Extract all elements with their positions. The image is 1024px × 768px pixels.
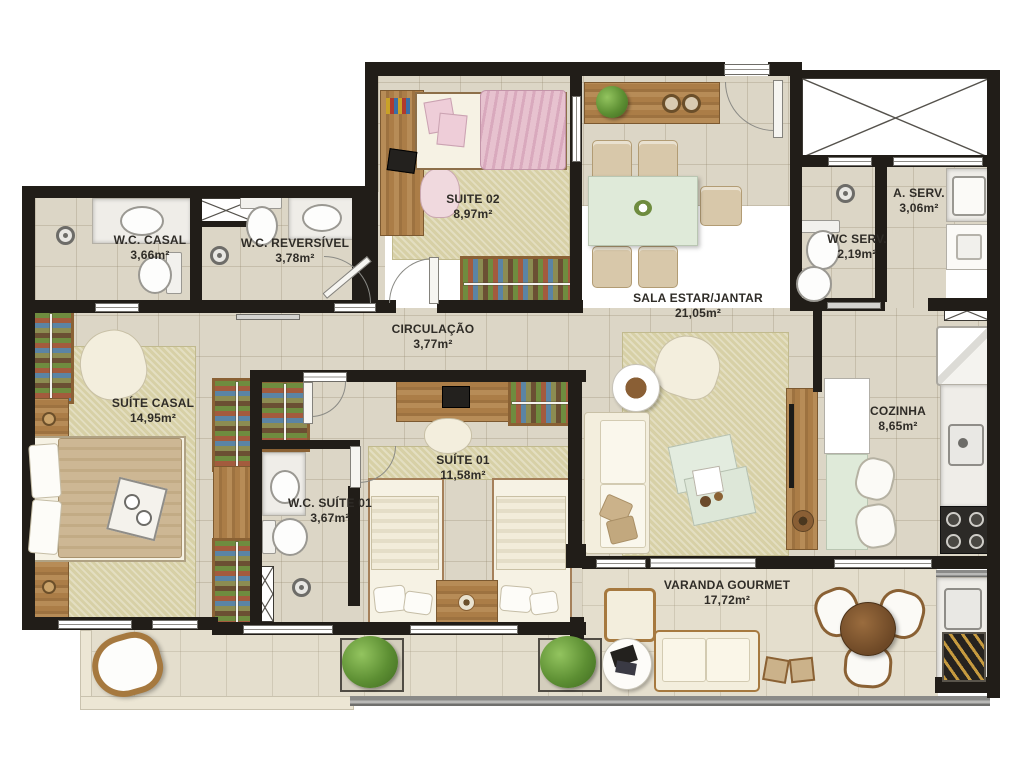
room-area: 2,19m² xyxy=(826,247,888,262)
churrasqueira-grill xyxy=(942,632,986,682)
door-opening-wc-casal xyxy=(95,303,139,312)
bowl-sideboard-b xyxy=(682,94,701,113)
room-name: W.C. SUÍTE 01 xyxy=(284,496,376,511)
room-label-sala: SALA ESTAR/JANTAR 21,05m² xyxy=(608,291,788,320)
window-suite-casal-a xyxy=(58,620,132,629)
wall-sala-cozinha-divider xyxy=(813,309,822,392)
hall-shaft xyxy=(802,78,989,158)
closet-casal-knob-a xyxy=(42,412,56,426)
door-opening-aserv-right xyxy=(893,157,983,166)
decor-ball-a xyxy=(700,496,711,507)
blanket-suite01-right xyxy=(496,496,566,570)
burner-2 xyxy=(969,512,984,527)
shower-head-wc-suite01 xyxy=(292,578,311,597)
decor-ball-b xyxy=(714,492,723,501)
sink-wc-casal xyxy=(120,206,164,236)
room-label-suite01: SUÍTE 01 11,58m² xyxy=(398,453,528,482)
varanda-round-table xyxy=(840,602,896,656)
wall-hall-top xyxy=(800,70,990,78)
dining-chair-5 xyxy=(638,246,678,288)
wall-suite02-bottom xyxy=(437,300,583,313)
side-table-sala xyxy=(612,364,660,412)
wall-circulacao-suite01 xyxy=(250,370,586,382)
room-area: 11,58m² xyxy=(398,468,528,483)
glass-door-cozinha xyxy=(834,559,932,568)
room-area: 17,72m² xyxy=(632,593,822,608)
room-name: COZINHA xyxy=(838,404,958,419)
varanda-stool-a xyxy=(762,656,790,684)
room-area: 3,77m² xyxy=(358,337,508,352)
room-label-wc-reversivel: W.C. REVERSÍVEL 3,78m² xyxy=(200,236,390,265)
room-name: SUÍTE 01 xyxy=(398,453,528,468)
speaker-panel xyxy=(792,510,814,532)
washing-machine-door xyxy=(956,234,982,260)
balcony-parapet-bottom xyxy=(80,696,354,710)
balcony-glass-railing xyxy=(350,696,990,706)
tv-screen xyxy=(789,404,794,488)
pillow-s1r-b xyxy=(529,590,560,616)
bowl-sideboard-a xyxy=(662,94,681,113)
varanda-sofa-cushion-b xyxy=(706,638,750,682)
sofa-sala-cushion-a xyxy=(600,420,646,484)
pillow-s1l-a xyxy=(373,584,408,613)
room-name: CIRCULAÇÃO xyxy=(358,322,508,337)
door-leaf-suite02 xyxy=(429,257,439,304)
glass-door-varanda-a xyxy=(596,559,646,568)
pillow-s1l-b xyxy=(403,590,434,616)
window-suite01-a xyxy=(243,625,333,634)
door-opening-suite01-hall xyxy=(303,372,347,382)
nightstand-knob xyxy=(458,594,475,611)
wall-wcserv-aserv-divider xyxy=(875,160,887,302)
entry-threshold xyxy=(724,64,770,75)
wall-suitecasal-suite01 xyxy=(250,372,262,624)
window-suite02-sala xyxy=(572,96,581,162)
room-label-cozinha: COZINHA 8,65m² xyxy=(838,404,958,433)
room-area: 3,06m² xyxy=(874,201,964,216)
sink-wc-serv xyxy=(796,266,832,302)
plant-b xyxy=(540,636,596,688)
apartment-floor-plan: W.C. CASAL 3,66m² W.C. REVERSÍVEL 3,78m²… xyxy=(0,0,1024,768)
sink-wc-rev xyxy=(302,204,342,232)
room-name: W.C. REVERSÍVEL xyxy=(200,236,390,251)
room-area: 8,97m² xyxy=(398,207,548,222)
laptop-suite01 xyxy=(442,386,470,408)
door-leaf-suite01-hall xyxy=(303,382,313,424)
tray-cup-b xyxy=(136,510,152,526)
room-label-wc-serv: WC SERV. 2,19m² xyxy=(826,232,888,261)
service-counter xyxy=(946,270,988,298)
laptop-suite02 xyxy=(387,148,418,174)
room-label-wc-suite01: W.C. SUÍTE 01 3,67m² xyxy=(284,496,376,525)
burner-4 xyxy=(969,534,984,549)
room-area: 8,65m² xyxy=(838,419,958,434)
room-area: 3,67m² xyxy=(284,511,376,526)
room-name: SUITE 02 xyxy=(398,192,548,207)
varanda-stool-b xyxy=(789,657,815,683)
room-name: A. SERV. xyxy=(874,186,964,201)
closet-middle-cabinet xyxy=(213,466,255,540)
pillow-casal-b xyxy=(28,499,63,555)
room-area: 21,05m² xyxy=(608,306,788,321)
door-opening-aserv-left xyxy=(828,157,872,166)
varanda-sink xyxy=(944,588,982,630)
wall-suite01-sala xyxy=(568,372,582,558)
wall-step-suite02 xyxy=(365,62,378,198)
closet-casal-knob-b xyxy=(42,580,56,594)
books-suite02 xyxy=(386,98,410,114)
fridge xyxy=(936,326,992,386)
dining-chair-3 xyxy=(700,186,742,226)
room-name: WC SERV. xyxy=(826,232,888,247)
kitchen-sink-drain xyxy=(958,438,968,448)
room-name: VARANDA GOURMET xyxy=(632,578,822,593)
burner-3 xyxy=(946,534,961,549)
varanda-counter-edge xyxy=(936,570,988,577)
shower-head-wc-serv xyxy=(836,184,855,203)
blanket-suite02 xyxy=(480,90,566,170)
burner-1 xyxy=(946,512,961,527)
window-suite-casal-b xyxy=(152,620,198,629)
plant-a xyxy=(342,636,398,688)
door-swing-suite02 xyxy=(389,258,434,303)
room-label-varanda: VARANDA GOURMET 17,72m² xyxy=(632,578,822,607)
room-area: 3,78m² xyxy=(200,251,390,266)
room-label-circulacao: CIRCULAÇÃO 3,77m² xyxy=(358,322,508,351)
pillow-casal-a xyxy=(28,443,62,499)
sliding-door-suite-casal xyxy=(236,314,300,320)
door-opening-wc-reversivel xyxy=(334,303,376,312)
room-area: 14,95m² xyxy=(78,411,228,426)
dining-chair-4 xyxy=(592,246,632,288)
wall-left-outer xyxy=(22,186,35,630)
pillow-suite02-b xyxy=(436,113,467,148)
blanket-suite01-left xyxy=(371,496,439,570)
chair-suite01 xyxy=(424,418,472,454)
door-leaf-entry xyxy=(773,80,783,138)
wall-wcsuite01-top xyxy=(250,440,350,449)
stove xyxy=(940,506,990,554)
room-label-suite-casal: SUÍTE CASAL 14,95m² xyxy=(78,396,228,425)
room-name: SUÍTE CASAL xyxy=(78,396,228,411)
varanda-sofa-cushion-a xyxy=(662,638,706,682)
plant-sideboard xyxy=(596,86,628,118)
room-label-suite02: SUITE 02 8,97m² xyxy=(398,192,548,221)
wall-right-outer xyxy=(987,70,1000,698)
window-suite01-b xyxy=(410,625,518,634)
wall-top-main xyxy=(365,62,725,76)
wall-below-aserv xyxy=(928,298,988,311)
room-name: SALA ESTAR/JANTAR xyxy=(608,291,788,306)
sliding-door-wcserv xyxy=(827,302,881,309)
glass-door-varanda-b xyxy=(650,558,756,568)
door-leaf-wc-suite01 xyxy=(350,446,361,488)
pillow-s1r-a xyxy=(499,585,533,614)
room-label-a-serv: A. SERV. 3,06m² xyxy=(874,186,964,215)
table-centerpiece xyxy=(634,200,652,216)
